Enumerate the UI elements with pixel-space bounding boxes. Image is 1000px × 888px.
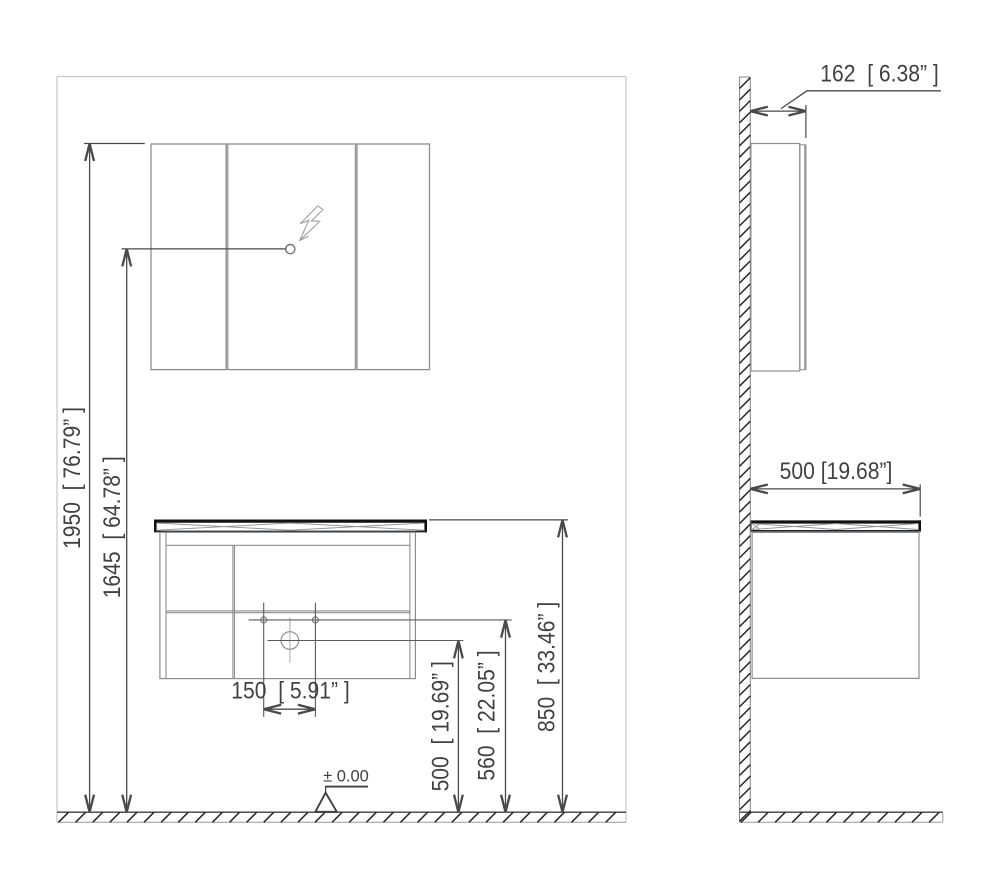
svg-text:560 [ 22.05” ]: 560 [ 22.05” ]: [473, 650, 500, 780]
svg-text:1950 [ 76.79” ]: 1950 [ 76.79” ]: [59, 407, 86, 549]
svg-text:500 [ 19.69” ]: 500 [ 19.69” ]: [427, 661, 454, 791]
svg-text:1645 [ 64.78” ]: 1645 [ 64.78” ]: [99, 456, 126, 598]
svg-text:500 [19.68”]: 500 [19.68”]: [780, 458, 893, 485]
svg-text:850 [ 33.46” ]: 850 [ 33.46” ]: [533, 602, 560, 732]
svg-text:150 [ 5.91” ]: 150 [ 5.91” ]: [231, 677, 350, 704]
svg-text:162 [ 6.38” ]: 162 [ 6.38” ]: [820, 60, 939, 87]
svg-text:± 0.00: ± 0.00: [323, 768, 369, 786]
